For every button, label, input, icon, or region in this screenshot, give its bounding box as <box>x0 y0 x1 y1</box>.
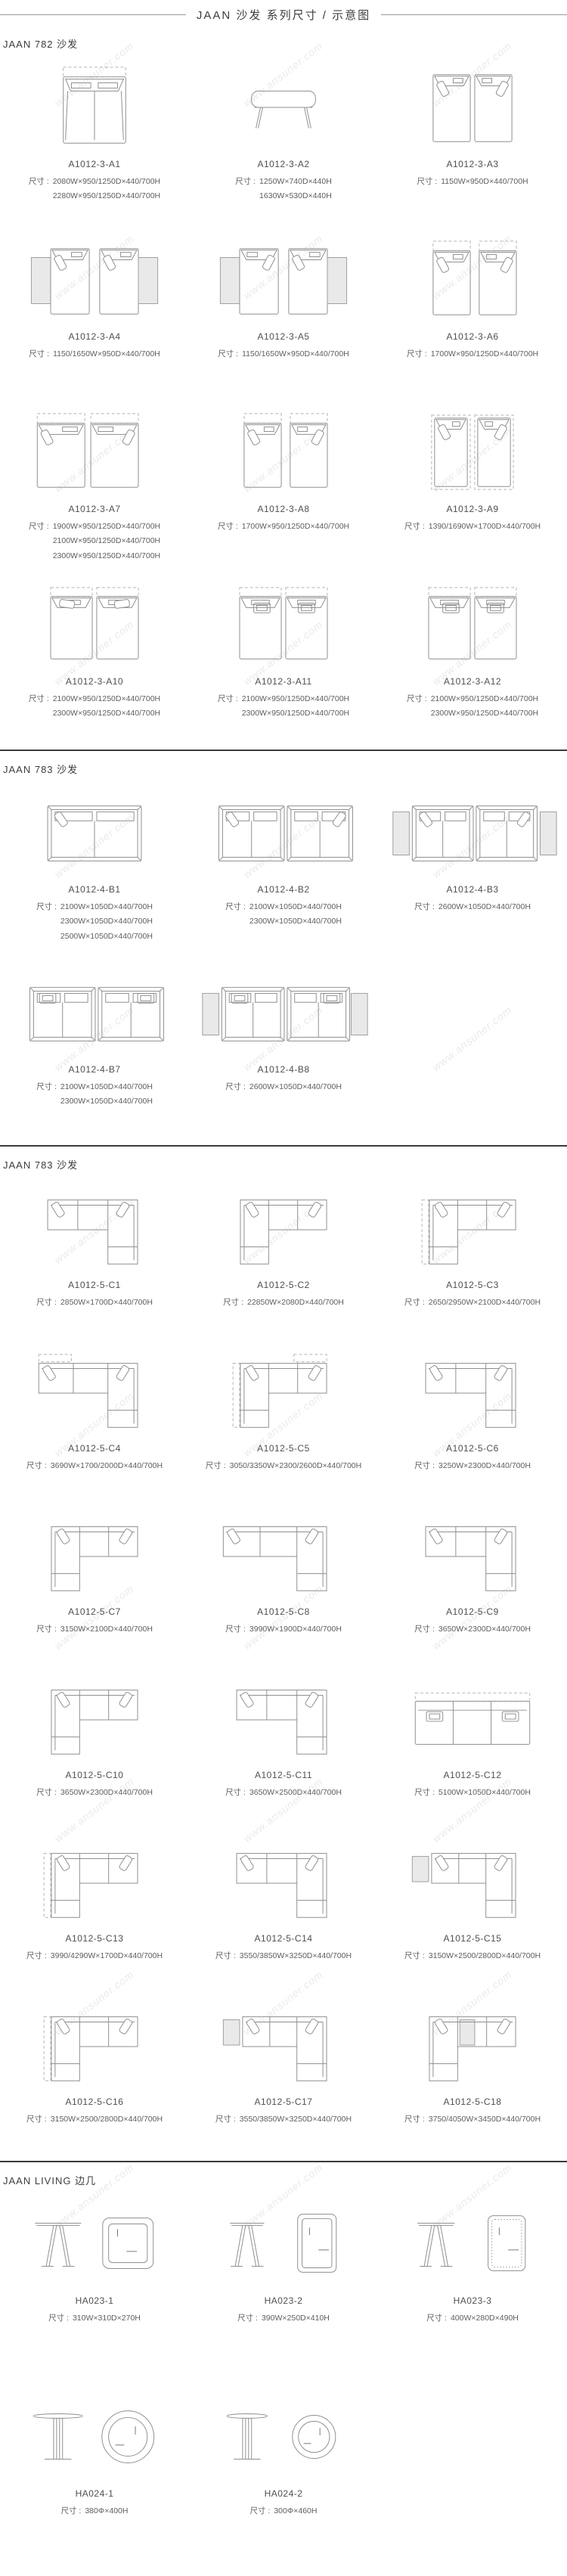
model-code: A1012-5-C1 <box>68 1280 121 1290</box>
model-code: A1012-5-C14 <box>255 1933 313 1944</box>
dims-label: 尺寸 : <box>407 692 427 722</box>
dimensions: 尺寸 :1250W×740D×440H1630W×530D×440H <box>235 175 332 204</box>
module-pair-diagram <box>386 63 559 152</box>
dim-line: 3650W×2300D×440/700H <box>438 1622 531 1637</box>
dim-line: 2100W×950/1250D×440/700H <box>53 692 160 706</box>
product-item: A1012-5-C7尺寸 :3150W×2100D×440/700H <box>0 1501 189 1665</box>
module-pair-dash-top-wide-diagram <box>8 408 181 497</box>
model-code: A1012-3-A10 <box>66 676 123 687</box>
dimensions: 尺寸 :3150W×2100D×440/700H <box>36 1622 153 1637</box>
dim-line: 2300W×950/1250D×440/700H <box>431 706 538 721</box>
product-item: A1012-5-C12尺寸 :5100W×1050D×440/700H <box>378 1665 567 1828</box>
model-code: HA024-1 <box>76 2488 114 2499</box>
l-tl-diagram <box>8 1510 181 1600</box>
model-code: A1012-5-C10 <box>66 1770 124 1780</box>
dimensions: 尺寸 :3150W×2500/2800D×440/700H <box>404 1949 541 1963</box>
product-item: A1012-4-B3尺寸 :2600W×1050D×440/700H <box>378 779 567 959</box>
l-tr-diagram <box>197 1674 370 1763</box>
dimensions: 尺寸 :2650/2950W×2100D×440/700H <box>404 1296 541 1310</box>
item-row: A1012-3-A4尺寸 :1150/1650W×950D×440/700HA1… <box>0 226 567 399</box>
dims-label: 尺寸 : <box>414 900 435 914</box>
dim-line: 2300W×950/1250D×440/700H <box>242 706 349 721</box>
product-item: HA024-1尺寸 :380Φ×400H <box>0 2383 189 2576</box>
dim-line: 3150W×2500/2800D×440/700H <box>429 1949 541 1963</box>
product-item: A1012-5-C8尺寸 :3990W×1900D×440/700H <box>189 1501 378 1665</box>
model-code: HA023-1 <box>76 2295 114 2306</box>
sofa-tray-pair-diagram <box>8 968 181 1057</box>
dims-label: 尺寸 : <box>48 2311 69 2326</box>
l-tr-diagram <box>386 1510 559 1600</box>
dims-label: 尺寸 : <box>215 1949 236 1963</box>
dim-line: 1250W×740D×440H <box>259 175 332 189</box>
dim-line: 3550/3850W×3250D×440/700H <box>240 2112 352 2127</box>
dim-line: 2300W×1050D×440/700H <box>249 914 342 929</box>
dim-line: 3650W×2500D×440/700H <box>249 1786 342 1800</box>
dimensions: 尺寸 :380Φ×400H <box>61 2504 129 2519</box>
dimensions: 尺寸 :3750/4050W×3450D×440/700H <box>404 2112 541 2127</box>
dims-label: 尺寸 : <box>404 1296 425 1310</box>
dim-line: 3990W×1900D×440/700H <box>249 1622 342 1637</box>
model-code: A1012-5-C11 <box>255 1770 312 1780</box>
page-header: JAAN 沙发 系列尺寸 / 示意图 <box>0 0 567 26</box>
dim-line: 1900W×950/1250D×440/700H <box>53 520 160 534</box>
dim-line: 5100W×1050D×440/700H <box>438 1786 531 1800</box>
header-rule-left <box>0 14 186 15</box>
product-item: A1012-5-C10尺寸 :3650W×2300D×440/700H <box>0 1665 189 1828</box>
dim-line: 3150W×2500/2800D×440/700H <box>51 2112 163 2127</box>
catalog-page: www.ansuner.comwww.ansuner.comwww.ansune… <box>0 0 567 2576</box>
section: JAAN 783 沙发A1012-4-B1尺寸 :2100W×1050D×440… <box>0 750 567 1139</box>
model-code: A1012-5-C17 <box>255 2096 313 2107</box>
dim-line: 310W×310D×270H <box>73 2311 141 2326</box>
dim-line: 2600W×1050D×440/700H <box>249 1080 342 1094</box>
dimensions: 尺寸 :2100W×1050D×440/700H2300W×1050D×440/… <box>225 900 342 930</box>
dims-label: 尺寸 : <box>36 1786 57 1800</box>
model-code: A1012-5-C12 <box>444 1770 502 1780</box>
model-code: A1012-4-B3 <box>446 884 498 895</box>
model-code: A1012-3-A11 <box>255 676 311 687</box>
model-code: A1012-3-A4 <box>68 331 120 342</box>
dim-line: 2300W×1050D×440/700H <box>60 914 153 929</box>
l-tr-diagram <box>197 1837 370 1926</box>
dim-line: 1150/1650W×950D×440/700H <box>53 347 160 362</box>
dimensions: 尺寸 :3650W×2300D×440/700H <box>414 1622 531 1637</box>
l-tl-diagram <box>197 1184 370 1273</box>
product-item: A1012-5-C5尺寸 :3050/3350W×2300/2600D×440/… <box>189 1338 378 1501</box>
product-item: A1012-3-A9尺寸 :1390/1690W×1700D×440/700H <box>378 399 567 571</box>
l-tr-diagram <box>386 1347 559 1436</box>
item-row: HA023-1尺寸 :310W×310D×270HHA023-2尺寸 :390W… <box>0 2190 567 2383</box>
side-table-rect-diagram <box>197 2199 370 2289</box>
model-code: A1012-5-C18 <box>444 2096 502 2107</box>
l-tl-dash2-diagram <box>197 1347 370 1436</box>
sofa-wide-pair-tables-diagram <box>386 788 559 877</box>
sofa-wide-diagram <box>8 788 181 877</box>
l-tl-diagram <box>8 1674 181 1763</box>
dims-label: 尺寸 : <box>407 347 427 362</box>
item-row: A1012-3-A10尺寸 :2100W×950/1250D×440/700H2… <box>0 571 567 743</box>
model-code: A1012-5-C7 <box>68 1606 121 1617</box>
product-item: A1012-5-C18尺寸 :3750/4050W×3450D×440/700H <box>378 1991 567 2155</box>
dimensions: 尺寸 :3550/3850W×3250D×440/700H <box>215 2112 352 2127</box>
dimensions: 尺寸 :3990/4290W×1700D×440/700H <box>26 1949 163 1963</box>
sofa-tray-pair-tables-diagram <box>197 968 370 1057</box>
dimensions: 尺寸 :3550/3850W×3250D×440/700H <box>215 1949 352 1963</box>
dimensions: 尺寸 :3050/3350W×2300/2600D×440/700H <box>206 1459 361 1473</box>
model-code: A1012-5-C8 <box>257 1606 310 1617</box>
dim-line: 3050/3350W×2300/2600D×440/700H <box>230 1459 362 1473</box>
l-tr-table-diagram <box>197 2000 370 2090</box>
l-tr-diagram <box>8 1184 181 1273</box>
dims-label: 尺寸 : <box>29 692 49 722</box>
module-pair-dash-recline-diagram <box>8 580 181 669</box>
dim-line: 2100W×1050D×440/700H <box>60 900 153 914</box>
model-code: A1012-5-C5 <box>257 1443 310 1454</box>
module-pair-dash-tray-diagram <box>197 580 370 669</box>
dims-label: 尺寸 : <box>206 1459 226 1473</box>
l-tl-dash-diagram <box>8 2000 181 2090</box>
dims-label: 尺寸 : <box>223 1296 243 1310</box>
dimensions: 尺寸 :2100W×950/1250D×440/700H2300W×950/12… <box>407 692 538 722</box>
item-row: A1012-4-B1尺寸 :2100W×1050D×440/700H2300W×… <box>0 779 567 959</box>
dims-label: 尺寸 : <box>414 1622 435 1637</box>
section: JAAN LIVING 边几HA023-1尺寸 :310W×310D×270HH… <box>0 2161 567 2576</box>
l-tr-table-diagram <box>386 1837 559 1926</box>
dim-line: 1150/1650W×950D×440/700H <box>242 347 349 362</box>
dimensions: 尺寸 :2600W×1050D×440/700H <box>225 1080 342 1094</box>
page-title: JAAN 沙发 系列尺寸 / 示意图 <box>197 7 370 23</box>
model-code: A1012-3-A6 <box>446 331 498 342</box>
catalog-sections: JAAN 782 沙发A1012-3-A1尺寸 :2080W×950/1250D… <box>0 26 567 2576</box>
product-item: A1012-5-C9尺寸 :3650W×2300D×440/700H <box>378 1501 567 1665</box>
module-pair-tables-in-diagram <box>197 235 370 324</box>
product-item: A1012-3-A3尺寸 :1150W×950D×440/700H <box>378 54 567 226</box>
dim-line: 2100W×950/1250D×440/700H <box>53 534 160 548</box>
section: JAAN 783 沙发A1012-5-C1尺寸 :2850W×1700D×440… <box>0 1145 567 2155</box>
dimensions: 尺寸 :5100W×1050D×440/700H <box>414 1786 531 1800</box>
dim-line: 2280W×950/1250D×440/700H <box>53 189 160 203</box>
model-code: A1012-3-A7 <box>68 504 120 514</box>
product-item: A1012-4-B1尺寸 :2100W×1050D×440/700H2300W×… <box>0 779 189 959</box>
dims-label: 尺寸 : <box>404 520 425 534</box>
item-row: A1012-3-A7尺寸 :1900W×950/1250D×440/700H21… <box>0 399 567 571</box>
dim-line: 2650/2950W×2100D×440/700H <box>429 1296 541 1310</box>
dimensions: 尺寸 :1700W×950/1250D×440/700H <box>407 347 538 362</box>
dimensions: 尺寸 :1700W×950/1250D×440/700H <box>218 520 349 534</box>
dimensions: 尺寸 :2850W×1700D×440/700H <box>36 1296 153 1310</box>
model-code: A1012-5-C9 <box>446 1606 499 1617</box>
product-item: A1012-3-A2尺寸 :1250W×740D×440H1630W×530D×… <box>189 54 378 226</box>
product-item: A1012-5-C1尺寸 :2850W×1700D×440/700H <box>0 1175 189 1338</box>
dim-line: 2100W×950/1250D×440/700H <box>431 692 538 706</box>
l-tl-dash-diagram <box>386 1184 559 1273</box>
l-tl-table-diagram <box>386 2000 559 2090</box>
dimensions: 尺寸 :310W×310D×270H <box>48 2311 141 2326</box>
dimensions: 尺寸 :2100W×950/1250D×440/700H2300W×950/12… <box>218 692 349 722</box>
model-code: A1012-3-A8 <box>257 504 309 514</box>
product-item: A1012-3-A1尺寸 :2080W×950/1250D×440/700H22… <box>0 54 189 226</box>
dimensions: 尺寸 :2100W×950/1250D×440/700H2300W×950/12… <box>29 692 160 722</box>
model-code: A1012-5-C3 <box>446 1280 499 1290</box>
sofa-wide-pair-diagram <box>197 788 370 877</box>
product-item: A1012-4-B2尺寸 :2100W×1050D×440/700H2300W×… <box>189 779 378 959</box>
section: JAAN 782 沙发A1012-3-A1尺寸 :2080W×950/1250D… <box>0 26 567 743</box>
dim-line: 2080W×950/1250D×440/700H <box>53 175 160 189</box>
dim-line: 3750/4050W×3450D×440/700H <box>429 2112 541 2127</box>
product-item: HA023-2尺寸 :390W×250D×410H <box>189 2190 378 2383</box>
dims-label: 尺寸 : <box>225 900 246 930</box>
dims-label: 尺寸 : <box>225 1080 246 1094</box>
dims-label: 尺寸 : <box>414 1786 435 1800</box>
dims-label: 尺寸 : <box>218 347 238 362</box>
dims-label: 尺寸 : <box>417 175 437 189</box>
model-code: A1012-5-C6 <box>446 1443 499 1454</box>
l-tl-dash-diagram <box>8 1837 181 1926</box>
product-item: A1012-3-A10尺寸 :2100W×950/1250D×440/700H2… <box>0 571 189 743</box>
product-item: A1012-5-C6尺寸 :3250W×2300D×440/700H <box>378 1338 567 1501</box>
product-item: A1012-5-C15尺寸 :3150W×2500/2800D×440/700H <box>378 1828 567 1991</box>
item-row: A1012-5-C4尺寸 :3690W×1700/2000D×440/700HA… <box>0 1338 567 1501</box>
dim-line: 1390/1690W×1700D×440/700H <box>429 520 541 534</box>
dims-label: 尺寸 : <box>61 2504 82 2519</box>
dimensions: 尺寸 :2100W×1050D×440/700H2300W×1050D×440/… <box>36 900 153 944</box>
sofa-top-dashed-diagram <box>8 63 181 152</box>
dim-line: 2850W×1700D×440/700H <box>60 1296 153 1310</box>
model-code: HA024-2 <box>265 2488 303 2499</box>
item-row: A1012-5-C16尺寸 :3150W×2500/2800D×440/700H… <box>0 1991 567 2155</box>
straight-3-diagram <box>386 1674 559 1763</box>
product-item: HA023-3尺寸 :400W×280D×490H <box>378 2190 567 2383</box>
dims-label: 尺寸 : <box>237 2311 258 2326</box>
model-code: HA023-3 <box>454 2295 492 2306</box>
dim-line: 3690W×1700/2000D×440/700H <box>51 1459 163 1473</box>
dim-line: 3550/3850W×3250D×440/700H <box>240 1949 352 1963</box>
dims-label: 尺寸 : <box>426 2311 447 2326</box>
dim-line: 2300W×950/1250D×440/700H <box>53 549 160 563</box>
item-row: A1012-5-C1尺寸 :2850W×1700D×440/700HA1012-… <box>0 1175 567 1338</box>
dimensions: 尺寸 :3250W×2300D×440/700H <box>414 1459 531 1473</box>
section-heading: JAAN LIVING 边几 <box>0 2162 567 2190</box>
dim-line: 390W×250D×410H <box>262 2311 330 2326</box>
model-code: A1012-3-A12 <box>444 676 501 687</box>
product-item: A1012-5-C3尺寸 :2650/2950W×2100D×440/700H <box>378 1175 567 1338</box>
product-item: A1012-3-A4尺寸 :1150/1650W×950D×440/700H <box>0 226 189 399</box>
dims-label: 尺寸 : <box>225 1622 246 1637</box>
dimensions: 尺寸 :1390/1690W×1700D×440/700H <box>404 520 541 534</box>
module-pair-tables-diagram <box>8 235 181 324</box>
product-item: A1012-5-C2尺寸 :22850W×2080D×440/700H <box>189 1175 378 1338</box>
dimensions: 尺寸 :300Φ×460H <box>250 2504 318 2519</box>
dims-label: 尺寸 : <box>29 175 49 204</box>
model-code: A1012-4-B1 <box>68 884 120 895</box>
model-code: A1012-3-A2 <box>257 159 309 169</box>
dimensions: 尺寸 :400W×280D×490H <box>426 2311 519 2326</box>
dimensions: 尺寸 :22850W×2080D×440/700H <box>223 1296 344 1310</box>
item-row: A1012-4-B7尺寸 :2100W×1050D×440/700H2300W×… <box>0 959 567 1139</box>
side-table-square-diagram <box>8 2199 181 2289</box>
side-table-round-diagram <box>8 2392 181 2481</box>
model-code: A1012-4-B8 <box>257 1064 309 1075</box>
dims-label: 尺寸 : <box>414 1459 435 1473</box>
dim-line: 2300W×1050D×440/700H <box>60 1094 153 1109</box>
dims-label: 尺寸 : <box>218 520 238 534</box>
dims-label: 尺寸 : <box>250 2504 271 2519</box>
dimensions: 尺寸 :3150W×2500/2800D×440/700H <box>26 2112 163 2127</box>
side-table-round-small-diagram <box>197 2392 370 2481</box>
side-table-rect-dotted-diagram <box>386 2199 559 2289</box>
dims-label: 尺寸 : <box>26 2112 47 2127</box>
dim-line: 2100W×1050D×440/700H <box>249 900 342 914</box>
dim-line: 2600W×1050D×440/700H <box>438 900 531 914</box>
dims-label: 尺寸 : <box>36 1296 57 1310</box>
dimensions: 尺寸 :390W×250D×410H <box>237 2311 330 2326</box>
dims-label: 尺寸 : <box>404 2112 425 2127</box>
dimensions: 尺寸 :1150/1650W×950D×440/700H <box>29 347 160 362</box>
item-row: HA024-1尺寸 :380Φ×400HHA024-2尺寸 :300Φ×460H <box>0 2383 567 2576</box>
dim-line: 1150W×950D×440/700H <box>441 175 528 189</box>
section-heading: JAAN 783 沙发 <box>0 1147 567 1175</box>
model-code: A1012-5-C16 <box>66 2096 124 2107</box>
section-heading: JAAN 783 沙发 <box>0 751 567 779</box>
bench-side-diagram <box>197 63 370 152</box>
dimensions: 尺寸 :2600W×1050D×440/700H <box>414 900 531 914</box>
dims-label: 尺寸 : <box>26 1459 47 1473</box>
product-item: A1012-3-A8尺寸 :1700W×950/1250D×440/700H <box>189 399 378 571</box>
dimensions: 尺寸 :3690W×1700/2000D×440/700H <box>26 1459 163 1473</box>
module-pair-dash-top-diagram <box>386 235 559 324</box>
model-code: A1012-3-A3 <box>446 159 498 169</box>
model-code: A1012-4-B7 <box>68 1064 120 1075</box>
dim-line: 3650W×2300D×440/700H <box>60 1786 153 1800</box>
dim-line: 3150W×2100D×440/700H <box>60 1622 153 1637</box>
product-item: A1012-3-A6尺寸 :1700W×950/1250D×440/700H <box>378 226 567 399</box>
item-row: A1012-5-C7尺寸 :3150W×2100D×440/700HA1012-… <box>0 1501 567 1665</box>
module-pair-tall-dash-diagram <box>386 408 559 497</box>
dimensions: 尺寸 :2080W×950/1250D×440/700H2280W×950/12… <box>29 175 160 204</box>
dim-line: 400W×280D×490H <box>451 2311 519 2326</box>
product-item: HA024-2尺寸 :300Φ×460H <box>189 2383 378 2576</box>
dims-label: 尺寸 : <box>29 347 49 362</box>
model-code: A1012-3-A5 <box>257 331 309 342</box>
dims-label: 尺寸 : <box>36 1080 57 1110</box>
dims-label: 尺寸 : <box>404 1949 425 1963</box>
l-tr-wide-diagram <box>197 1510 370 1600</box>
dims-label: 尺寸 : <box>218 692 238 722</box>
dim-line: 2300W×950/1250D×440/700H <box>53 706 160 721</box>
dims-label: 尺寸 : <box>36 900 57 944</box>
l-tr-dash-diagram <box>8 1347 181 1436</box>
dim-line: 2100W×1050D×440/700H <box>60 1080 153 1094</box>
dims-label: 尺寸 : <box>36 1622 57 1637</box>
dim-line: 3250W×2300D×440/700H <box>438 1459 531 1473</box>
dim-line: 22850W×2080D×440/700H <box>247 1296 344 1310</box>
product-item: A1012-3-A5尺寸 :1150/1650W×950D×440/700H <box>189 226 378 399</box>
product-item: A1012-5-C16尺寸 :3150W×2500/2800D×440/700H <box>0 1991 189 2155</box>
dim-line: 2100W×950/1250D×440/700H <box>242 692 349 706</box>
product-item: A1012-5-C11尺寸 :3650W×2500D×440/700H <box>189 1665 378 1828</box>
dimensions: 尺寸 :1150/1650W×950D×440/700H <box>218 347 349 362</box>
dims-label: 尺寸 : <box>235 175 256 204</box>
model-code: A1012-5-C4 <box>68 1443 121 1454</box>
module-pair-dash-tray-diagram <box>386 580 559 669</box>
dim-line: 1630W×530D×440H <box>259 189 332 203</box>
dims-label: 尺寸 : <box>215 2112 236 2127</box>
item-row: A1012-3-A1尺寸 :2080W×950/1250D×440/700H22… <box>0 54 567 226</box>
dim-line: 2500W×1050D×440/700H <box>60 930 153 944</box>
model-code: A1012-5-C15 <box>444 1933 502 1944</box>
dims-label: 尺寸 : <box>26 1949 47 1963</box>
product-item: A1012-3-A12尺寸 :2100W×950/1250D×440/700H2… <box>378 571 567 743</box>
model-code: HA023-2 <box>265 2295 303 2306</box>
item-row: A1012-5-C10尺寸 :3650W×2300D×440/700HA1012… <box>0 1665 567 1828</box>
dim-line: 1700W×950/1250D×440/700H <box>242 520 349 534</box>
dimensions: 尺寸 :2100W×1050D×440/700H2300W×1050D×440/… <box>36 1080 153 1110</box>
model-code: A1012-5-C2 <box>257 1280 310 1290</box>
model-code: A1012-5-C13 <box>66 1933 124 1944</box>
dimensions: 尺寸 :3650W×2300D×440/700H <box>36 1786 153 1800</box>
dimensions: 尺寸 :3990W×1900D×440/700H <box>225 1622 342 1637</box>
dim-line: 380Φ×400H <box>85 2504 128 2519</box>
dim-line: 3990/4290W×1700D×440/700H <box>51 1949 163 1963</box>
header-rule-right <box>381 14 567 15</box>
dim-line: 1700W×950/1250D×440/700H <box>431 347 538 362</box>
module-pair-dash-top-diagram <box>197 408 370 497</box>
section-heading: JAAN 782 沙发 <box>0 26 567 54</box>
model-code: A1012-3-A9 <box>446 504 498 514</box>
product-item: A1012-3-A11尺寸 :2100W×950/1250D×440/700H2… <box>189 571 378 743</box>
dims-label: 尺寸 : <box>29 520 49 563</box>
item-row: A1012-5-C13尺寸 :3990/4290W×1700D×440/700H… <box>0 1828 567 1991</box>
dims-label: 尺寸 : <box>225 1786 246 1800</box>
dimensions: 尺寸 :1900W×950/1250D×440/700H2100W×950/12… <box>29 520 160 563</box>
product-item: A1012-5-C4尺寸 :3690W×1700/2000D×440/700H <box>0 1338 189 1501</box>
product-item: HA023-1尺寸 :310W×310D×270H <box>0 2190 189 2383</box>
product-item: A1012-3-A7尺寸 :1900W×950/1250D×440/700H21… <box>0 399 189 571</box>
product-item: A1012-4-B7尺寸 :2100W×1050D×440/700H2300W×… <box>0 959 189 1139</box>
product-item: A1012-5-C17尺寸 :3550/3850W×3250D×440/700H <box>189 1991 378 2155</box>
dimensions: 尺寸 :1150W×950D×440/700H <box>417 175 528 189</box>
product-item: A1012-4-B8尺寸 :2600W×1050D×440/700H <box>189 959 378 1139</box>
model-code: A1012-3-A1 <box>68 159 120 169</box>
product-item: A1012-5-C14尺寸 :3550/3850W×3250D×440/700H <box>189 1828 378 1991</box>
product-item: A1012-5-C13尺寸 :3990/4290W×1700D×440/700H <box>0 1828 189 1991</box>
dimensions: 尺寸 :3650W×2500D×440/700H <box>225 1786 342 1800</box>
dim-line: 300Φ×460H <box>274 2504 317 2519</box>
model-code: A1012-4-B2 <box>257 884 309 895</box>
